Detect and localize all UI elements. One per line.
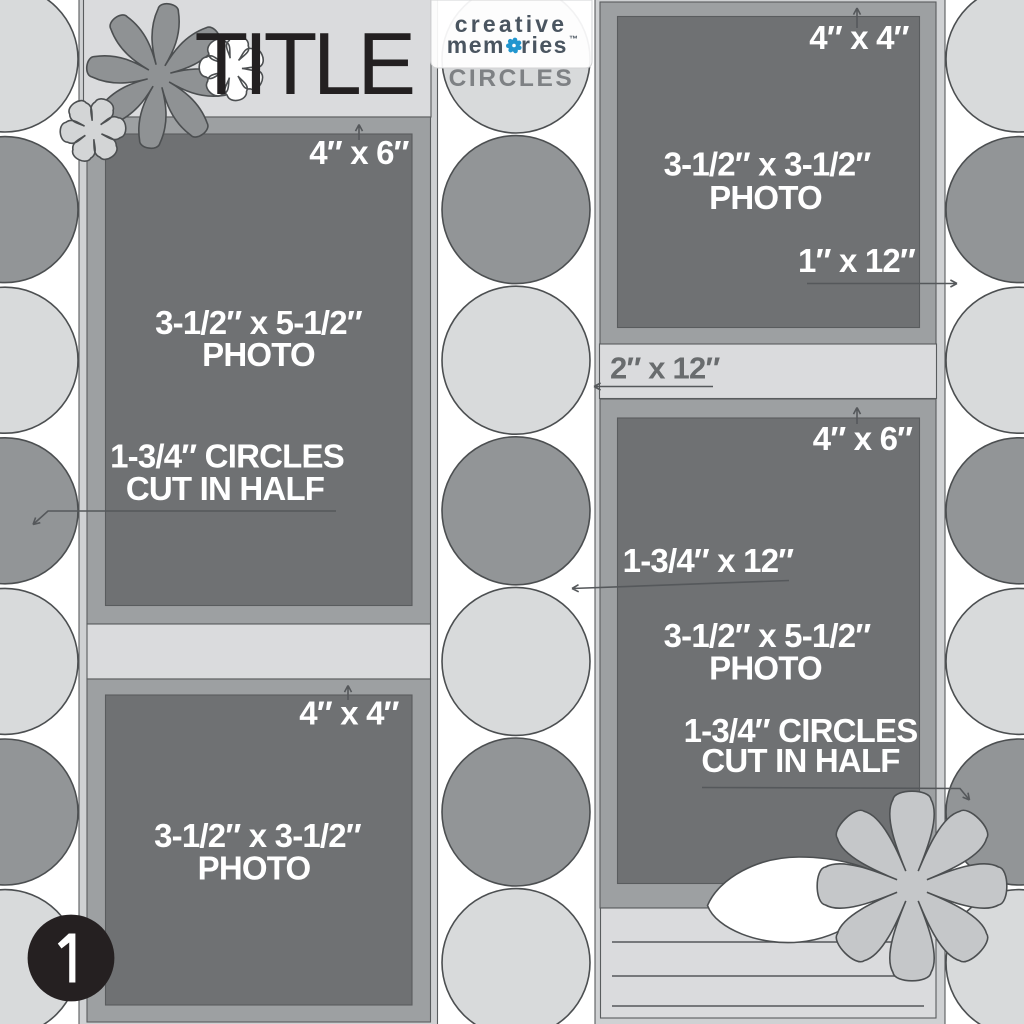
svg-text:PHOTO: PHOTO	[709, 179, 822, 216]
svg-text:4″ x 4″: 4″ x 4″	[299, 695, 399, 732]
svg-text:3-1/2″ x 5-1/2″: 3-1/2″ x 5-1/2″	[664, 617, 872, 654]
svg-text:PHOTO: PHOTO	[198, 850, 311, 887]
svg-text:1″ x 12″: 1″ x 12″	[798, 242, 916, 279]
svg-text:4″ x 4″: 4″ x 4″	[809, 19, 909, 56]
svg-text:™: ™	[569, 34, 578, 44]
svg-text:ries: ries	[521, 32, 568, 58]
svg-text:mem: mem	[447, 32, 505, 58]
svg-text:1-3/4″ x 12″: 1-3/4″ x 12″	[623, 542, 795, 579]
svg-text:3-1/2″ x 3-1/2″: 3-1/2″ x 3-1/2″	[664, 146, 872, 183]
svg-text:CUT IN HALF: CUT IN HALF	[701, 742, 899, 779]
svg-text:CIRCLES: CIRCLES	[449, 65, 575, 92]
svg-text:4″ x 6″: 4″ x 6″	[813, 420, 913, 457]
svg-text:3-1/2″ x 3-1/2″: 3-1/2″ x 3-1/2″	[154, 817, 362, 854]
svg-text:2″ x 12″: 2″ x 12″	[610, 351, 720, 386]
svg-text:TITLE: TITLE	[194, 14, 412, 113]
svg-text:PHOTO: PHOTO	[202, 336, 315, 373]
svg-text:CUT IN HALF: CUT IN HALF	[126, 470, 324, 507]
svg-text:1-3/4″ CIRCLES: 1-3/4″ CIRCLES	[110, 438, 344, 475]
svg-text:PHOTO: PHOTO	[709, 650, 822, 687]
